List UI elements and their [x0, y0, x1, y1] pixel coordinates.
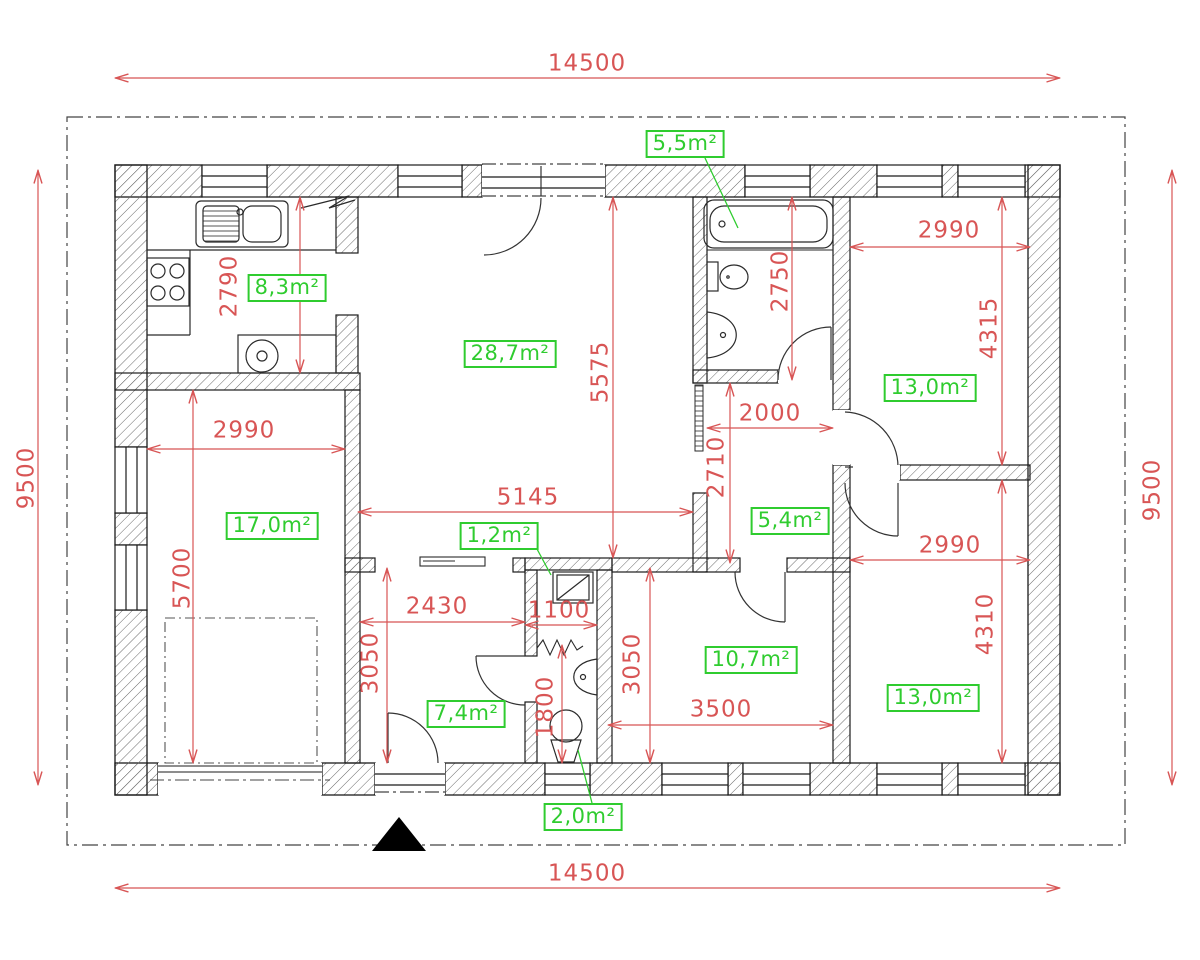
area-label-wc: 2,0m²: [544, 803, 623, 831]
dim-overall-width-top: 14500: [548, 53, 626, 76]
dim-wc-depth: 1800: [535, 676, 558, 739]
bedroom-bottom-door: [845, 465, 900, 536]
projection-dashed-rect: [165, 618, 317, 763]
wardrobe-mirror: [695, 385, 703, 451]
area-label-middle-room: 10,7m²: [705, 646, 798, 674]
area-label-closet: 1,2m²: [460, 522, 539, 550]
wc-wash-basin: [574, 659, 597, 695]
dim-entry-width: 2430: [406, 596, 469, 619]
bathtub: [704, 200, 833, 250]
dim-wc-width: 1100: [528, 600, 591, 623]
dim-bathroom-depth: 2750: [770, 250, 793, 313]
dim-living-width: 5145: [497, 487, 560, 510]
dim-middle-room-depth: 3050: [622, 633, 645, 696]
area-label-kitchen: 8,3m²: [248, 274, 327, 302]
entrance-door-top: [482, 164, 605, 255]
bedroom-top-door: [833, 410, 898, 467]
dim-room-left-depth: 5700: [172, 547, 195, 610]
wc-door: [476, 656, 525, 705]
round-appliance: [246, 340, 278, 372]
entrance-marker-triangle: [372, 817, 426, 851]
toilet: [707, 262, 748, 291]
middle-room-door: [735, 572, 785, 622]
floor-plan: 14500 14500 9500 9500 2790 2990 5700 557…: [0, 0, 1200, 960]
dim-living-depth: 5575: [590, 341, 613, 404]
dim-overall-depth-right: 9500: [1142, 459, 1165, 522]
dim-entry-depth: 3050: [360, 632, 383, 695]
dim-middle-room-width: 3500: [690, 699, 753, 722]
dim-kitchen-depth: 2790: [219, 255, 242, 318]
dim-overall-width-bottom: 14500: [548, 863, 626, 886]
dim-bedroom-bottom-depth: 4310: [975, 593, 998, 656]
area-label-hallway: 5,4m²: [751, 507, 830, 535]
area-label-entry: 7,4m²: [427, 700, 506, 728]
low-sill-element: [420, 557, 485, 566]
cooktop-icon: [147, 258, 189, 306]
bathroom-door: [778, 327, 831, 383]
dim-bedroom-bottom-width: 2990: [919, 535, 982, 558]
area-label-bedroom-bottom: 13,0m²: [887, 684, 980, 712]
area-label-room-left: 17,0m²: [226, 512, 319, 540]
terrace-opening: [150, 763, 330, 795]
area-label-living-room: 28,7m²: [464, 340, 557, 368]
dim-bedroom-top-width: 2990: [918, 220, 981, 243]
dim-hallway-width: 2000: [739, 403, 802, 426]
wc-partition-zigzag: [537, 640, 583, 655]
area-label-bathroom: 5,5m²: [646, 130, 725, 158]
dim-bedroom-top-depth: 4315: [979, 297, 1002, 360]
dim-hallway-depth: 2710: [706, 436, 729, 499]
kitchen-sink: [196, 201, 288, 247]
dim-overall-depth-left: 9500: [16, 447, 39, 510]
wash-basin: [707, 312, 736, 358]
dim-room-left-width: 2990: [213, 420, 276, 443]
area-label-bedroom-top: 13,0m²: [884, 374, 977, 402]
